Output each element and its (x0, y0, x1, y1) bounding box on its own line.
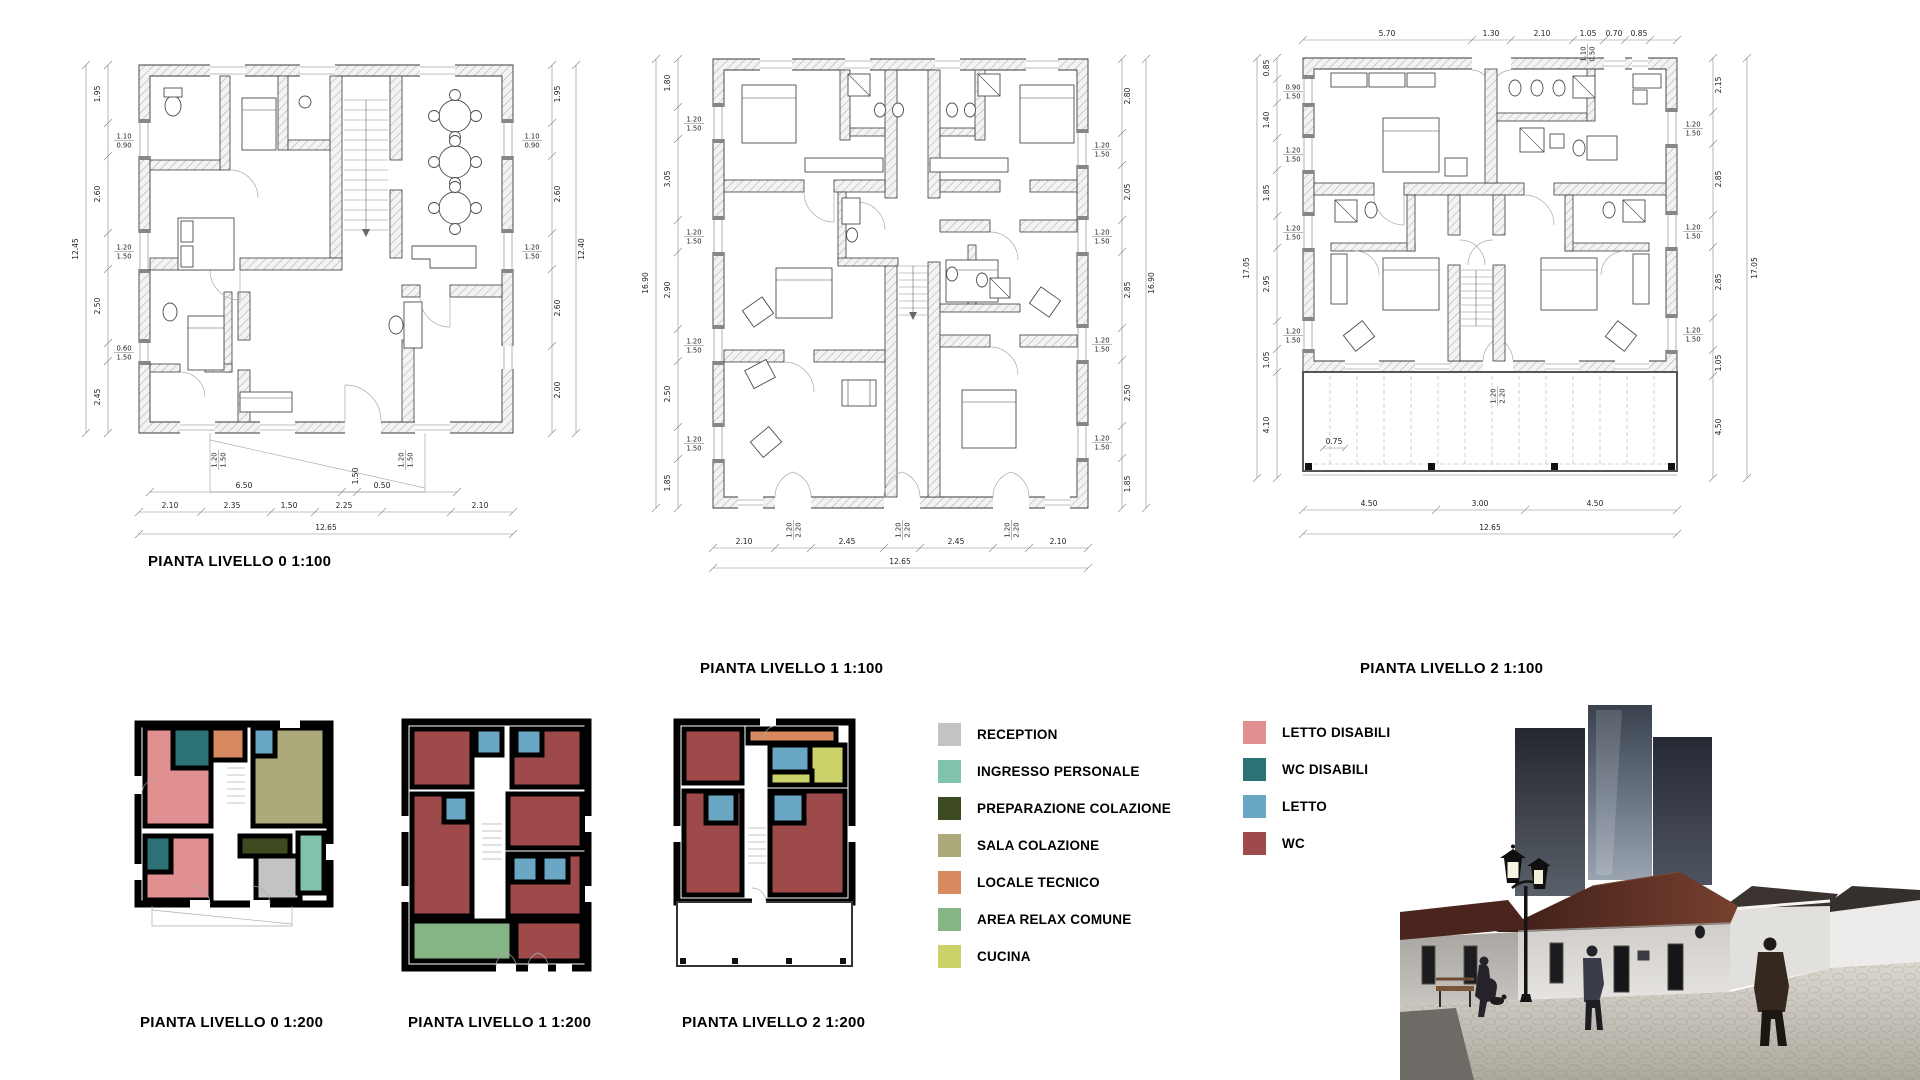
dim-label: 2.85 (1714, 170, 1723, 187)
legend-item-cucina: CUCINA (938, 945, 1171, 968)
svg-text:2.20: 2.20 (904, 522, 912, 537)
dim-pair: 1.201.50 (211, 450, 228, 470)
dim-label: 12.65 (889, 557, 911, 566)
legend-column-1: RECEPTION INGRESSO PERSONALE PREPARAZION… (938, 723, 1171, 982)
title-pianta-livello-0-200: PIANTA LIVELLO 0 1:200 (140, 1014, 323, 1031)
dim-label: 0.85 (1631, 29, 1648, 38)
svg-text:1.10: 1.10 (524, 133, 539, 141)
legend-label: RECEPTION (977, 727, 1058, 742)
svg-text:0.50: 0.50 (1589, 46, 1597, 61)
stair (227, 768, 245, 803)
legend-label: LETTO DISABILI (1282, 725, 1390, 740)
stair (482, 824, 502, 859)
room-wc-disabili (173, 728, 211, 768)
legend-item-letto-disabili: LETTO DISABILI (1243, 721, 1390, 744)
area-relax-comune-swatch-icon (938, 908, 961, 931)
dim-label: 2.10 (1534, 29, 1551, 38)
room-preparazione-colazione (240, 836, 290, 856)
dim-pair: 1.201.50 (398, 450, 415, 470)
dim-label: 2.60 (553, 185, 562, 202)
svg-text:1.50: 1.50 (1285, 337, 1300, 345)
svg-text:1.50: 1.50 (1094, 444, 1109, 452)
preparazione-colazione-swatch-icon (938, 797, 961, 820)
legend-item-wc-disabili: WC DISABILI (1243, 758, 1390, 781)
legend-item-area-relax-comune: AREA RELAX COMUNE (938, 908, 1171, 931)
dim-label: 3.05 (663, 170, 672, 187)
dim-label: 2.10 (162, 501, 179, 510)
svg-text:1.50: 1.50 (1685, 336, 1700, 344)
room-letto (770, 745, 810, 772)
legend-label: AREA RELAX COMUNE (977, 912, 1131, 927)
room-wc (516, 921, 582, 961)
dim-label: 4.50 (1587, 499, 1604, 508)
porch-outline (152, 906, 292, 926)
room-reception (256, 856, 300, 900)
dim-pair: 1.201.50 (1283, 328, 1303, 345)
dim-label: 1.80 (663, 74, 672, 91)
dim-pair: 1.100.90 (114, 133, 134, 150)
room-letto (476, 729, 502, 755)
svg-text:1.50: 1.50 (524, 253, 539, 261)
stair (899, 266, 927, 320)
svg-text:1.50: 1.50 (686, 445, 701, 453)
svg-text:1.20: 1.20 (1685, 224, 1700, 232)
svg-text:1.20: 1.20 (895, 522, 903, 537)
dim-label: 4.50 (1714, 418, 1723, 435)
svg-text:0.90: 0.90 (1285, 84, 1300, 92)
dim-pair: 1.100.90 (522, 133, 542, 150)
furniture (163, 88, 482, 412)
letto-swatch-icon (1243, 795, 1266, 818)
svg-text:0.90: 0.90 (116, 142, 131, 150)
svg-text:1.20: 1.20 (1004, 522, 1012, 537)
dim-label: 2.85 (1714, 273, 1723, 290)
title-pianta-livello-0-100: PIANTA LIVELLO 0 1:100 (148, 553, 331, 570)
dim-label: 12.40 (577, 238, 586, 260)
dim-label: 2.00 (553, 381, 562, 398)
svg-text:1.50: 1.50 (1094, 151, 1109, 159)
stair (344, 100, 388, 237)
room-wc (412, 729, 472, 787)
wall-plaque (1637, 950, 1650, 961)
dim-label: 6.50 (236, 481, 253, 490)
dim-pair: 1.201.50 (1092, 229, 1112, 246)
svg-text:1.20: 1.20 (686, 116, 701, 124)
svg-text:1.20: 1.20 (1094, 142, 1109, 150)
dim-pair: 1.201.50 (1683, 121, 1703, 138)
svg-text:1.50: 1.50 (407, 452, 415, 467)
svg-text:1.20: 1.20 (524, 244, 539, 252)
reception-swatch-icon (938, 723, 961, 746)
rooms (145, 728, 325, 900)
locale-tecnico-swatch-icon (938, 871, 961, 894)
svg-text:1.50: 1.50 (1094, 238, 1109, 246)
room-ingresso-personale (298, 833, 324, 893)
architectural-sheet: 12.45 1.95 2.60 2.50 2.45 1.100.90 1.201… (0, 0, 1920, 1080)
room-wc (684, 729, 742, 783)
wc-swatch-icon (1243, 832, 1266, 855)
svg-text:1.20: 1.20 (1285, 225, 1300, 233)
dim-label: 0.75 (1326, 437, 1343, 446)
terrace (1303, 372, 1677, 475)
svg-text:1.20: 1.20 (116, 244, 131, 252)
legend-item-reception: RECEPTION (938, 723, 1171, 746)
svg-text:1.20: 1.20 (1285, 147, 1300, 155)
dim-pair: 1.201.50 (114, 244, 134, 261)
dim-label: 1.95 (553, 85, 562, 102)
svg-text:1.50: 1.50 (1685, 130, 1700, 138)
dim-label: 1.50 (281, 501, 298, 510)
svg-text:1.20: 1.20 (1685, 327, 1700, 335)
dim-label: 1.30 (1483, 29, 1500, 38)
svg-text:1.50: 1.50 (1285, 234, 1300, 242)
dim-pair: 1.202.20 (786, 520, 803, 540)
legend-item-ingresso-personale: INGRESSO PERSONALE (938, 760, 1171, 783)
svg-text:1.20: 1.20 (686, 436, 701, 444)
legend-column-2: LETTO DISABILI WC DISABILI LETTO WC (1243, 721, 1390, 869)
svg-text:1.50: 1.50 (686, 347, 701, 355)
svg-text:1.20: 1.20 (398, 452, 406, 467)
room-letto (516, 729, 542, 755)
dim-pair: 1.201.50 (1092, 435, 1112, 452)
plan-livello-0-200-drawing (132, 716, 337, 931)
dim-label: 4.50 (1361, 499, 1378, 508)
legend-item-letto: LETTO (1243, 795, 1390, 818)
svg-text:1.20: 1.20 (1094, 229, 1109, 237)
legend-item-sala-colazione: SALA COLAZIONE (938, 834, 1171, 857)
dim-label: 2.90 (663, 281, 672, 298)
dim-label: 2.60 (93, 185, 102, 202)
svg-text:2.20: 2.20 (795, 522, 803, 537)
dim-label: 2.50 (663, 385, 672, 402)
legend-label: WC (1282, 836, 1305, 851)
dim-label: 1.95 (93, 85, 102, 102)
dim-label: 1.05 (1262, 351, 1271, 368)
title-pianta-livello-2-100: PIANTA LIVELLO 2 1:100 (1360, 660, 1543, 677)
dim-label: 2.60 (553, 299, 562, 316)
svg-text:2.20: 2.20 (1013, 522, 1021, 537)
room-letto (772, 793, 804, 823)
dim-pair: 1.100.50 (1580, 44, 1597, 64)
svg-text:1.10: 1.10 (116, 133, 131, 141)
dim-label: 5.70 (1379, 29, 1396, 38)
dim-label: 1.50 (351, 467, 360, 484)
svg-text:1.50: 1.50 (1285, 93, 1300, 101)
dim-pair: 1.201.50 (684, 229, 704, 246)
svg-text:1.20: 1.20 (1094, 337, 1109, 345)
oculus (1695, 926, 1705, 939)
dim-label: 17.05 (1750, 257, 1759, 279)
dim-pair: 1.201.50 (1283, 225, 1303, 242)
dim-pair: 1.202.20 (895, 520, 912, 540)
title-pianta-livello-1-200: PIANTA LIVELLO 1 1:200 (408, 1014, 591, 1031)
legend-item-wc: WC (1243, 832, 1390, 855)
dim-label: 2.50 (93, 297, 102, 314)
dim-label: 12.45 (71, 238, 80, 260)
svg-text:1.20: 1.20 (686, 229, 701, 237)
room-locale-tecnico (748, 729, 836, 743)
svg-text:0.90: 0.90 (524, 142, 539, 150)
dim-label: 12.65 (315, 523, 337, 532)
render-3d-view (1400, 700, 1920, 1080)
letto-disabili-swatch-icon (1243, 721, 1266, 744)
dim-label: 2.50 (1123, 384, 1132, 401)
room-locale-tecnico (211, 728, 245, 760)
rooms (684, 729, 845, 895)
dim-label: 2.35 (224, 501, 241, 510)
wc-disabili-swatch-icon (1243, 758, 1266, 781)
plan-livello-1-200-drawing (400, 716, 610, 976)
dim-pair: 1.201.50 (684, 436, 704, 453)
dim-pair: 0.601.50 (114, 345, 134, 362)
svg-text:1.10: 1.10 (1580, 46, 1588, 61)
svg-text:1.50: 1.50 (1094, 346, 1109, 354)
dim-label: 2.45 (948, 537, 965, 546)
dim-label: 1.85 (1262, 184, 1271, 201)
stair (1461, 270, 1492, 326)
dim-label: 16.90 (1147, 272, 1156, 294)
plan-livello-2-drawing: 5.70 1.30 2.10 1.05 0.70 0.85 1.100.50 1… (1235, 18, 1795, 578)
dim-label: 2.10 (1050, 537, 1067, 546)
dim-label: 1.05 (1580, 29, 1597, 38)
dim-label: 1.85 (1123, 475, 1132, 492)
ingresso-personale-swatch-icon (938, 760, 961, 783)
dim-pair: 1.201.50 (1092, 337, 1112, 354)
room-letto (706, 793, 736, 823)
dim-label: 1.05 (1714, 354, 1723, 371)
room-letto (512, 856, 538, 882)
svg-text:1.50: 1.50 (1685, 233, 1700, 241)
dim-label: 2.95 (1262, 275, 1271, 292)
doors (775, 192, 1029, 497)
dim-label: 2.15 (1714, 76, 1723, 93)
room-area-relax-comune (412, 921, 512, 961)
cucina-swatch-icon (938, 945, 961, 968)
dim-pair: 1.201.50 (684, 338, 704, 355)
svg-text:1.20: 1.20 (786, 522, 794, 537)
svg-text:1.20: 1.20 (1094, 435, 1109, 443)
dim-pair: 1.201.50 (1683, 327, 1703, 344)
dim-label: 2.25 (336, 501, 353, 510)
title-pianta-livello-1-100: PIANTA LIVELLO 1 1:100 (700, 660, 883, 677)
svg-text:1.50: 1.50 (686, 238, 701, 246)
plan-livello-2-200-drawing (668, 716, 883, 976)
dim-label: 16.90 (641, 272, 650, 294)
furniture (742, 74, 1074, 457)
dim-label: 0.70 (1606, 29, 1623, 38)
legend-label: LETTO (1282, 799, 1327, 814)
plan-livello-1-drawing: 16.90 1.80 3.05 2.90 2.50 1.85 1.201.50 … (630, 30, 1175, 575)
room-letto (542, 856, 568, 882)
title-pianta-livello-2-200: PIANTA LIVELLO 2 1:200 (682, 1014, 865, 1031)
dim-label: 1.85 (663, 474, 672, 491)
terrace (677, 902, 852, 966)
dim-label: 4.10 (1262, 416, 1271, 433)
svg-text:1.20: 1.20 (686, 338, 701, 346)
legend-label: CUCINA (977, 949, 1031, 964)
svg-text:1.50: 1.50 (116, 253, 131, 261)
dim-label: 2.10 (736, 537, 753, 546)
legend-label: INGRESSO PERSONALE (977, 764, 1140, 779)
dim-label: 2.85 (1123, 281, 1132, 298)
room-wc (508, 794, 582, 848)
dim-label: 2.10 (472, 501, 489, 510)
dim-label: 17.05 (1242, 257, 1251, 279)
dim-pair: 1.201.50 (1092, 142, 1112, 159)
dim-label: 2.80 (1123, 87, 1132, 104)
room-letto (253, 728, 275, 756)
legend-label: LOCALE TECNICO (977, 875, 1100, 890)
svg-text:1.50: 1.50 (116, 354, 131, 362)
legend-label: WC DISABILI (1282, 762, 1368, 777)
dim-pair: 1.202.20 (1004, 520, 1021, 540)
dim-pair: 1.201.50 (522, 244, 542, 261)
svg-text:1.20: 1.20 (1285, 328, 1300, 336)
dim-label: 3.00 (1472, 499, 1489, 508)
dim-label: 2.45 (93, 388, 102, 405)
room-letto (444, 796, 468, 822)
dim-label: 0.50 (374, 481, 391, 490)
dim-pair: 1.201.50 (684, 116, 704, 133)
svg-text:2.20: 2.20 (1499, 388, 1507, 403)
dim-pair: 1.201.50 (1283, 147, 1303, 164)
svg-text:1.20: 1.20 (211, 452, 219, 467)
room-wc-disabili (145, 836, 171, 872)
svg-text:1.20: 1.20 (1685, 121, 1700, 129)
dim-pair: 0.901.50 (1283, 84, 1303, 101)
legend-label: SALA COLAZIONE (977, 838, 1099, 853)
svg-text:1.50: 1.50 (1285, 156, 1300, 164)
sala-colazione-swatch-icon (938, 834, 961, 857)
svg-text:1.50: 1.50 (686, 125, 701, 133)
legend-item-locale-tecnico: LOCALE TECNICO (938, 871, 1171, 894)
dim-pair: 1.201.50 (1683, 224, 1703, 241)
plan-livello-0-drawing: 12.45 1.95 2.60 2.50 2.45 1.100.90 1.201… (60, 40, 600, 560)
dim-pair: 1.202.20 (1490, 386, 1507, 406)
svg-text:1.20: 1.20 (1490, 388, 1498, 403)
legend-item-preparazione-colazione: PREPARAZIONE COLAZIONE (938, 797, 1171, 820)
dim-label: 2.05 (1123, 183, 1132, 200)
legend-label: PREPARAZIONE COLAZIONE (977, 801, 1171, 816)
dim-label: 1.40 (1262, 111, 1271, 128)
dim-label: 12.65 (1479, 523, 1501, 532)
svg-text:0.60: 0.60 (116, 345, 131, 353)
stair (748, 828, 766, 863)
svg-text:1.50: 1.50 (220, 452, 228, 467)
dim-label: 2.45 (839, 537, 856, 546)
dim-label: 0.85 (1262, 59, 1271, 76)
